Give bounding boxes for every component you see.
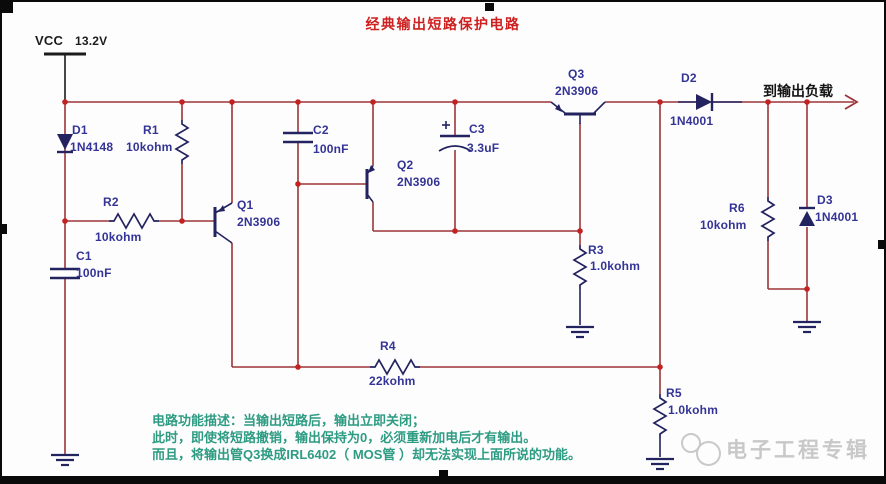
wire-nets: [65, 102, 854, 455]
vcc-voltage-label: 13.2V: [75, 34, 107, 48]
component-value-D2: 1N4001: [670, 114, 713, 128]
diode-D2-symbol: [678, 93, 742, 111]
resistor-R2-symbol: [109, 214, 159, 228]
resistor-R3-symbol: [574, 245, 586, 325]
watermark-text: 电子工程专辑: [726, 434, 870, 464]
frame-corner-mark: [2, 2, 13, 13]
ground-icon: [793, 322, 821, 332]
vcc-power-symbol: [44, 54, 86, 102]
vcc-net-label: VCC: [35, 33, 63, 48]
capacitor-C2-symbol: [283, 133, 313, 142]
component-value-R4: 22kohm: [369, 374, 416, 388]
component-value-Q1: 2N3906: [237, 215, 280, 229]
ground-icon: [51, 455, 79, 465]
resistor-R5-symbol: [654, 394, 666, 457]
output-load-label: 到输出负载: [763, 81, 833, 101]
component-value-R1: 10kohm: [126, 140, 173, 154]
component-ref-D2: D2: [681, 71, 697, 85]
resistor-R1-symbol: [176, 120, 188, 164]
component-value-C3: 3.3uF: [467, 141, 499, 155]
schematic-canvas: 经典输出短路保护电路 VCC 13.2V 到输出负载 D1 1N4148 R1 …: [0, 0, 886, 484]
component-ref-R4: R4: [380, 339, 396, 353]
transistor-Q1-symbol: [215, 203, 232, 243]
component-ref-C1: C1: [76, 249, 92, 263]
component-ref-D1: D1: [72, 123, 88, 137]
component-ref-Q2: Q2: [397, 158, 413, 172]
component-ref-Q3: Q3: [568, 67, 584, 81]
frame-right-mark: [878, 240, 886, 249]
component-ref-R1: R1: [143, 123, 159, 137]
resistor-R4-symbol: [370, 360, 420, 374]
component-ref-C3: C3: [469, 122, 485, 136]
ground-icon: [646, 459, 674, 469]
component-ref-R5: R5: [666, 386, 682, 400]
component-ref-C2: C2: [313, 123, 329, 137]
component-value-Q3: 2N3906: [555, 84, 598, 98]
schematic-title: 经典输出短路保护电路: [366, 14, 521, 34]
component-ref-Q1: Q1: [237, 198, 253, 212]
frame-top-mark: [485, 3, 494, 11]
diode-D3-symbol: [799, 208, 815, 226]
component-value-Q2: 2N3906: [397, 175, 440, 189]
bottom-border-bar: [2, 476, 886, 483]
frame-left-mark: [2, 224, 7, 234]
component-ref-R6: R6: [729, 201, 745, 215]
resistor-R6-symbol: [762, 197, 774, 241]
junction-dots: [62, 99, 810, 370]
component-value-R3: 1.0kohm: [590, 259, 640, 273]
component-value-R5: 1.0kohm: [668, 403, 718, 417]
component-value-R6: 10kohm: [700, 218, 747, 232]
component-ref-R2: R2: [103, 195, 119, 209]
note-line-3: 而且，将输出管Q3换成IRL6402（ MOS管 ）却无法实现上面所说的功能。: [152, 444, 581, 463]
ground-icon: [566, 327, 594, 337]
plus-polarity-icon: [442, 121, 450, 129]
component-value-D1: 1N4148: [70, 140, 113, 154]
transistor-Q2-symbol: [367, 165, 375, 202]
component-value-R2: 10kohm: [95, 230, 142, 244]
transistor-Q3-symbol: [551, 102, 605, 124]
component-value-D3: 1N4001: [815, 210, 858, 224]
component-value-C2: 100nF: [313, 142, 349, 156]
component-ref-D3: D3: [817, 193, 833, 207]
component-value-C1: 100nF: [76, 266, 112, 280]
component-ref-R3: R3: [588, 243, 604, 257]
watermark-logo-icon: [696, 441, 721, 466]
